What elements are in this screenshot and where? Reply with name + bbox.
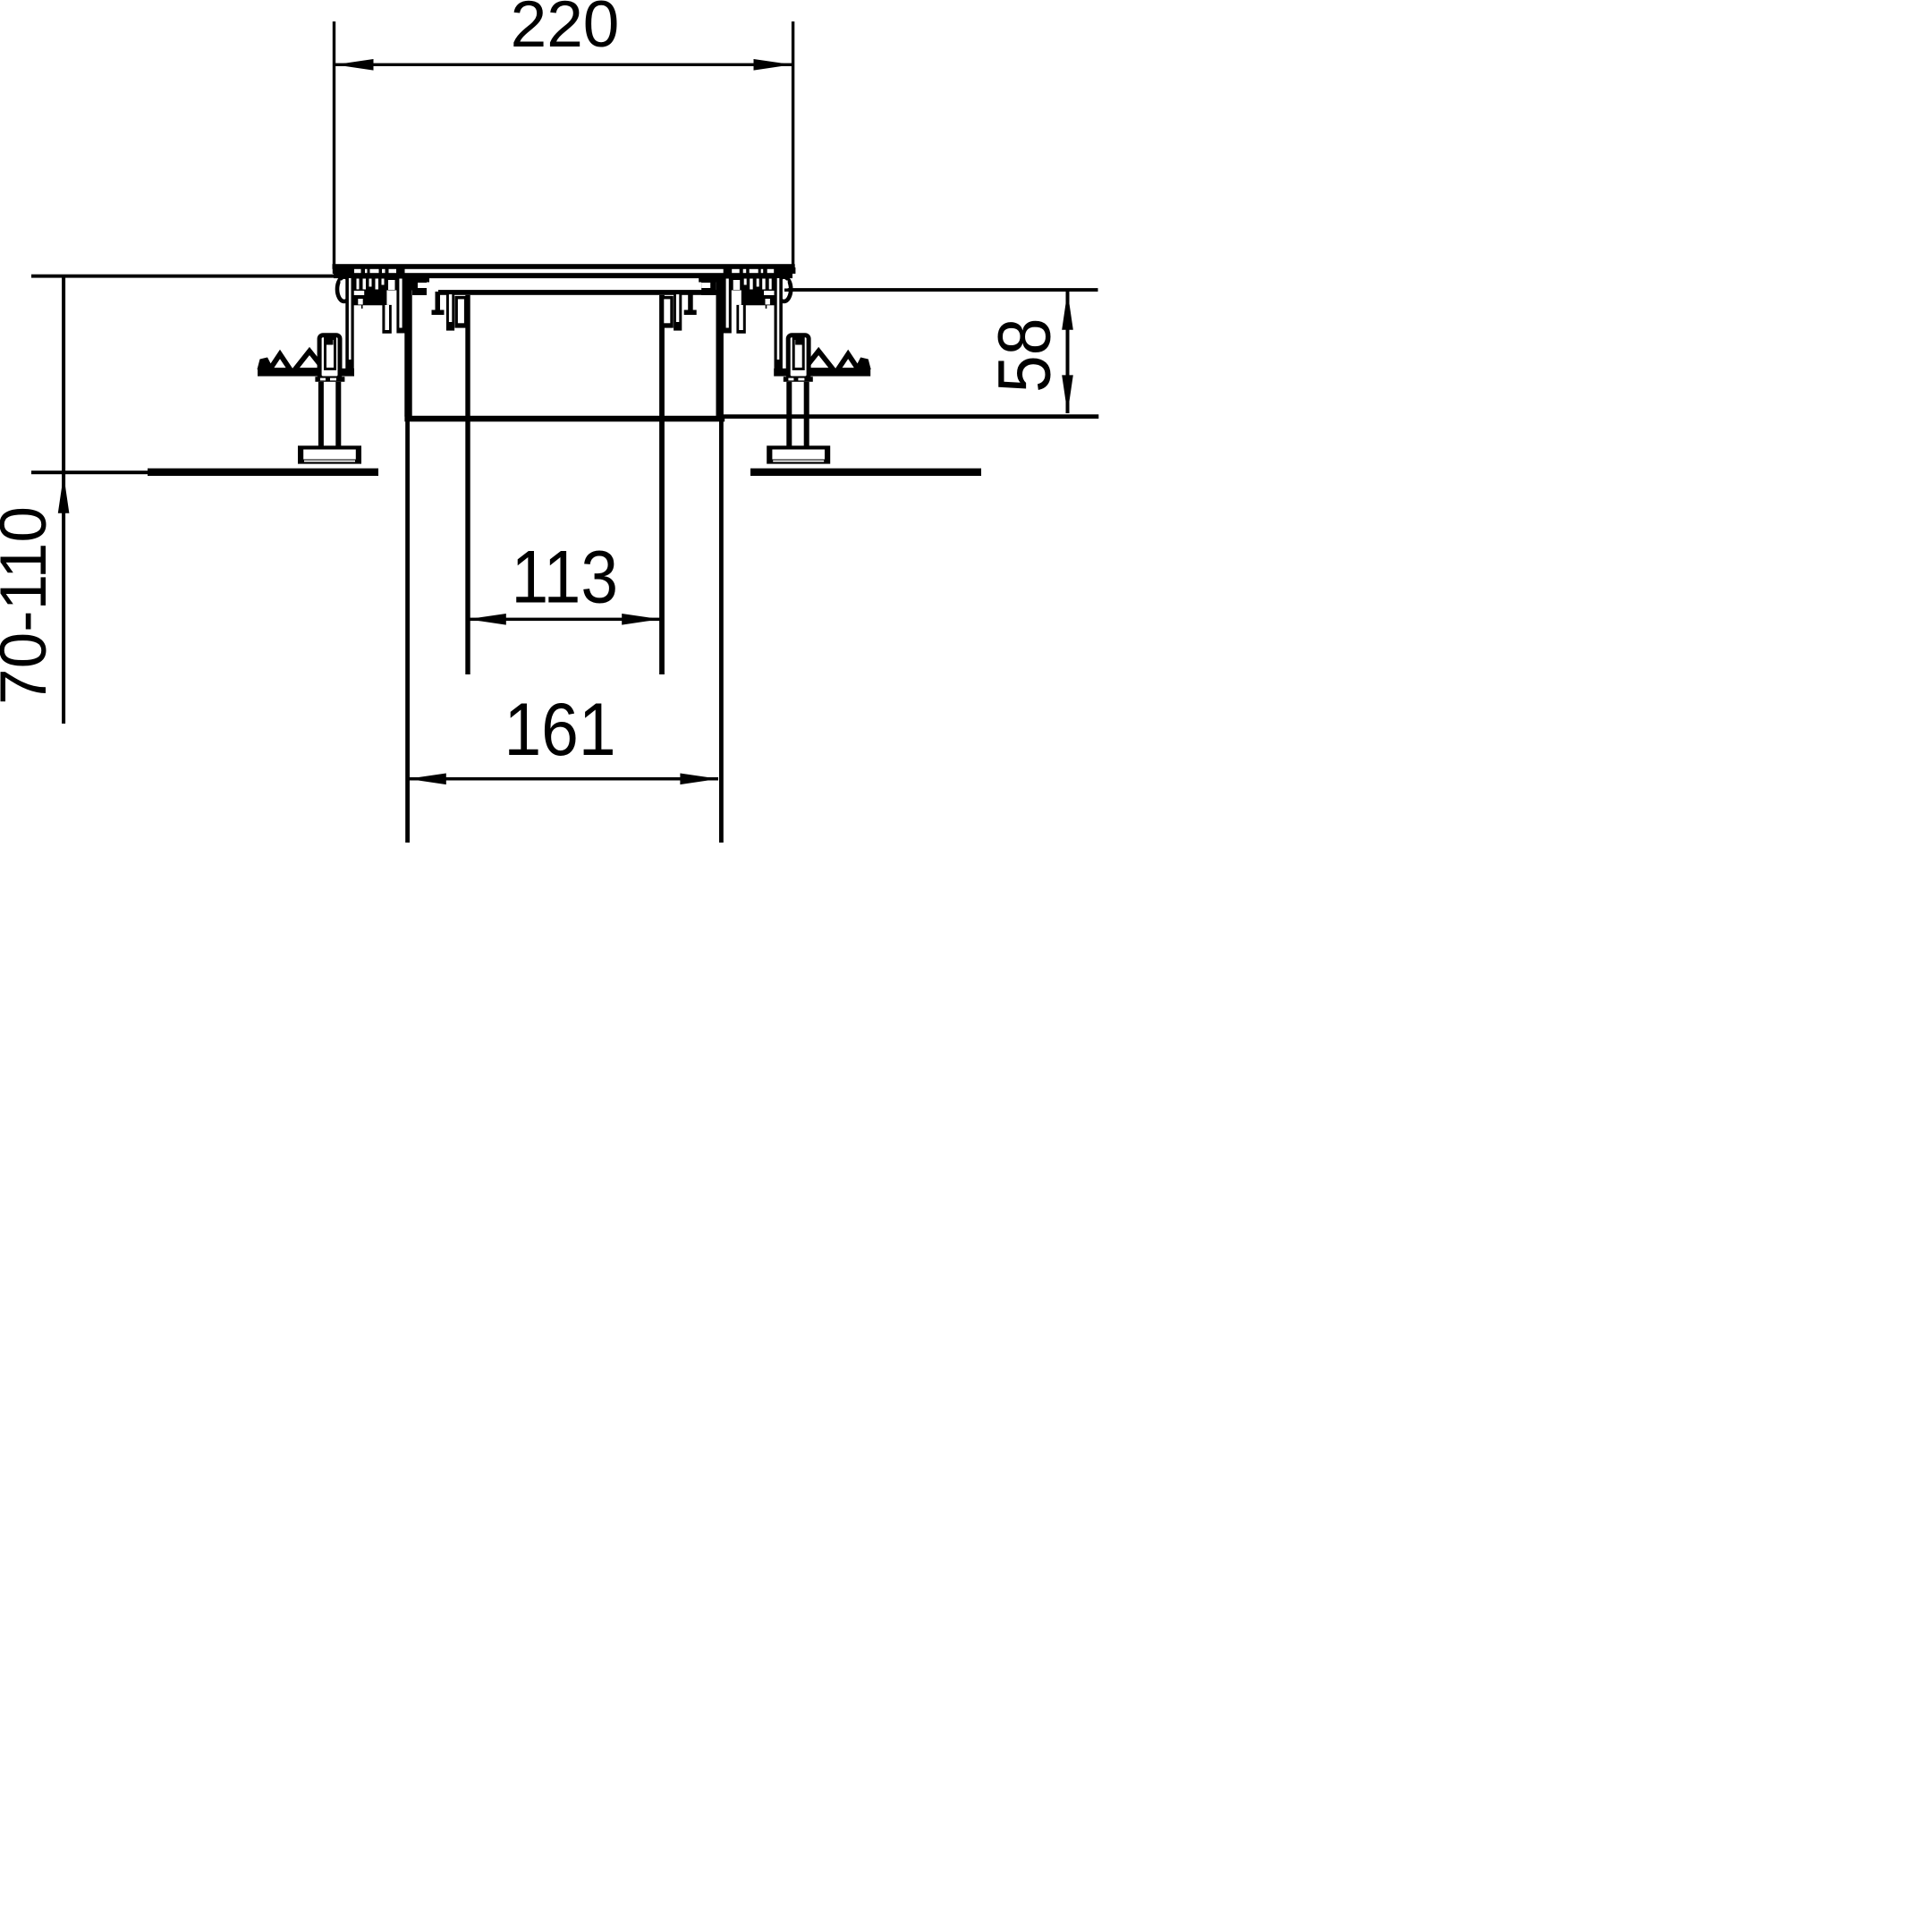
svg-text:161: 161 <box>504 687 615 771</box>
svg-text:113: 113 <box>512 535 619 619</box>
svg-text:70-110: 70-110 <box>0 506 60 705</box>
svg-text:220: 220 <box>511 0 620 61</box>
svg-text:58: 58 <box>982 318 1066 393</box>
